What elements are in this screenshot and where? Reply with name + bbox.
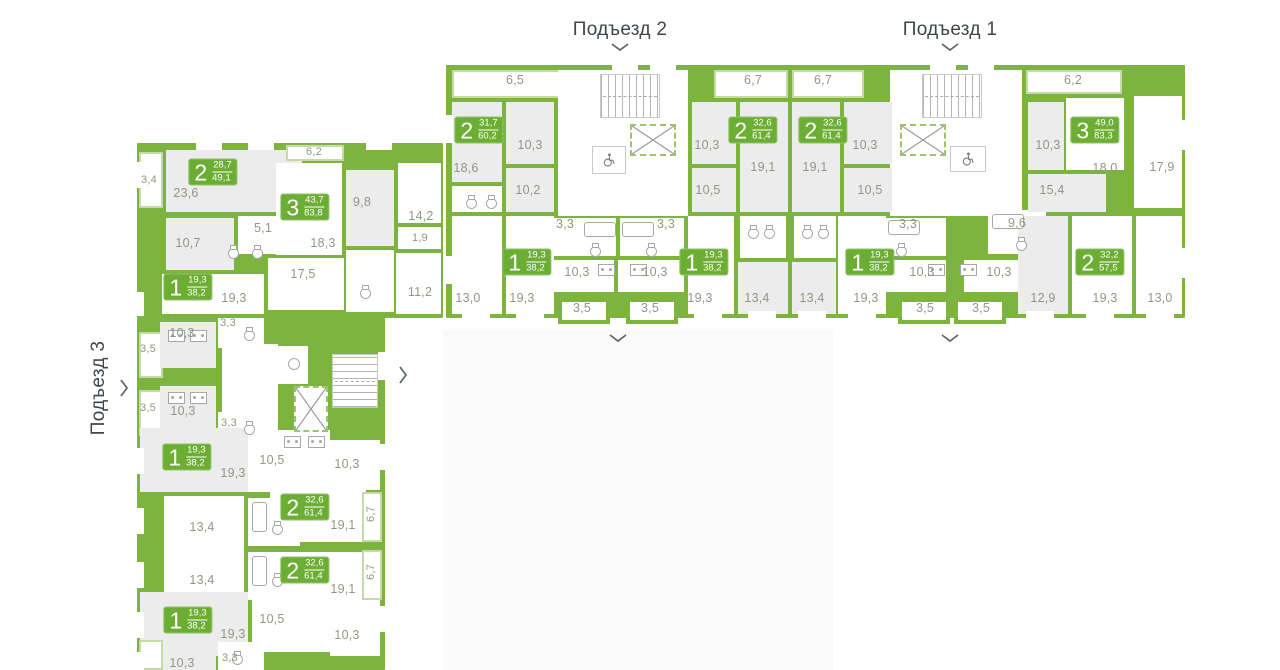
badge-living-area: 28,7 [212,161,233,173]
badge-total-area: 61,4 [822,131,843,142]
window-mark [1086,311,1114,318]
badge-areas: 19,338,2 [187,276,208,299]
area-label: 6,7 [744,73,762,87]
window-mark [366,143,392,150]
area-label: 3,3 [556,217,574,231]
toilet-icon [818,228,829,239]
badge-rooms-count: 2 [286,559,299,581]
stove-icon [960,264,977,276]
apartment-badge[interactable]: 119,338,2 [163,607,212,634]
badge-living-area: 19,3 [869,251,890,263]
badge-rooms-count: 2 [194,161,207,183]
area-label: 10,3 [169,326,194,340]
toilet-icon [244,330,255,341]
wheelchair-icon [950,146,986,172]
badge-total-area: 60,2 [478,131,499,142]
badge-areas: 19,338,2 [703,251,724,274]
area-label: 10,3 [334,457,359,471]
entrance-chevron-icon [119,378,129,398]
apartment-badge[interactable]: 119,338,2 [845,249,894,276]
badge-rooms-count: 2 [804,119,817,141]
area-label: 6,7 [365,506,377,522]
badge-living-area: 19,3 [526,251,547,263]
window-mark [1146,311,1174,318]
area-label: 17,5 [290,267,315,281]
area-label: 3,5 [972,301,990,315]
area-label: 9,8 [353,195,371,209]
badge-areas: 43,783,8 [304,196,325,219]
toilet-icon [360,288,371,299]
toilet-icon [896,246,907,257]
badge-areas: 32,661,4 [752,119,773,142]
toilet-icon [590,246,601,257]
entrance-chevron-icon [608,333,628,343]
badge-total-area: 61,4 [752,131,773,142]
area-label: 3,5 [140,402,156,414]
bathtub-icon [584,222,616,237]
toilet-icon [748,228,759,239]
entrance-chevron-icon [610,42,630,52]
badge-rooms-count: 3 [286,196,299,218]
area-label: 19,1 [330,582,355,596]
badge-total-area: 61,4 [304,571,325,582]
area-label: 13,0 [1147,291,1172,305]
area-label: 19,1 [750,160,775,174]
area-label: 18,6 [453,161,478,175]
wheelchair-icon [592,146,626,174]
badge-areas: 19,338,2 [526,251,547,274]
area-label: 6,7 [365,564,377,580]
area-label: 6,5 [506,73,524,87]
window-mark [462,311,490,318]
badge-total-area: 57,5 [1099,263,1120,274]
room [268,258,344,310]
elevator-icon [900,124,946,156]
window-mark [930,65,956,72]
window-mark [848,311,876,318]
toilet-icon [646,246,657,257]
toilet-icon [802,228,813,239]
badge-areas: 32,257,5 [1099,251,1120,274]
badge-rooms-count: 3 [1076,119,1089,141]
area-label: 10,3 [564,265,589,279]
area-label: 3,3 [657,217,675,231]
area-label: 10,3 [1035,138,1060,152]
apartment-badge[interactable]: 232,661,4 [798,117,847,144]
badge-rooms-count: 2 [1081,251,1094,273]
badge-rooms-count: 2 [286,496,299,518]
window-mark [137,292,144,316]
apartment-badge[interactable]: 349,083,3 [1070,117,1119,144]
window-mark [137,652,144,670]
area-label: 19,3 [509,291,534,305]
window-mark [694,311,722,318]
area-label: 19,3 [853,291,878,305]
badge-total-area: 61,4 [304,508,325,519]
stove-icon [168,392,185,404]
badge-total-area: 38,2 [869,263,890,274]
area-label: 10,3 [909,265,934,279]
window-mark [650,65,676,72]
window-mark [137,562,144,588]
elevator-icon [294,386,328,432]
badge-areas: 28,749,1 [212,161,233,184]
apartment-badge[interactable]: 119,338,2 [679,249,728,276]
area-label: 19,3 [220,627,245,641]
entrance-chevron-icon [398,365,408,385]
area-label: 3,3 [221,417,237,429]
entrance-chevron-icon [940,333,960,343]
stove-icon [190,392,207,404]
badge-rooms-count: 1 [169,276,182,298]
area-label: 3,5 [641,301,659,315]
room [1028,102,1064,170]
entrance-chevron-icon [940,42,960,52]
room [844,102,892,164]
badge-rooms-count: 1 [168,446,181,468]
apartment-badge[interactable]: 232,257,5 [1075,249,1124,276]
window-mark [968,65,994,72]
badge-living-area: 32,6 [304,496,325,508]
area-label: 14,2 [408,209,433,223]
badge-rooms-count: 1 [685,251,698,273]
area-label: 10,3 [986,265,1011,279]
badge-total-area: 38,2 [187,621,208,632]
area-label: 9,6 [1008,216,1026,230]
apartment-badge[interactable]: 231,760,2 [454,117,503,144]
apartment-badge[interactable]: 228,749,1 [188,159,237,186]
window-mark [378,352,385,380]
bathtub-icon [622,222,654,237]
stairs-icon [922,74,982,118]
badge-total-area: 38,2 [526,263,547,274]
area-label: 10,3 [169,656,194,670]
badge-living-area: 32,6 [752,119,773,131]
apartment-badge[interactable]: 232,661,4 [280,494,329,521]
badge-living-area: 32,6 [304,559,325,571]
elevator-icon [630,124,676,156]
area-label: 13,4 [189,573,214,587]
toilet-icon [466,198,477,209]
bathtub-icon [252,556,267,586]
badge-total-area: 49,1 [212,173,233,184]
area-label: 18,0 [1092,161,1117,175]
badge-total-area: 38,2 [187,288,208,299]
stairs-icon [332,354,378,408]
apartment-badge[interactable]: 119,338,2 [502,249,551,276]
badge-areas: 32,661,4 [822,119,843,142]
area-label: 13,4 [744,291,769,305]
apartment-badge[interactable]: 232,661,4 [728,117,777,144]
area-label: 10,3 [694,138,719,152]
apartment-badge[interactable]: 343,783,8 [280,194,329,221]
entrance-label: Подъезд 2 [573,19,667,41]
badge-rooms-count: 2 [734,119,747,141]
toilet-icon [244,424,255,435]
stove-icon [598,264,615,276]
area-label: 3,4 [141,174,157,186]
window-mark [378,606,385,632]
area-label: 15,4 [1039,183,1064,197]
room [738,262,788,314]
area-label: 10,3 [517,138,542,152]
area-label: 17,9 [1149,160,1174,174]
area-label: 10,7 [175,236,200,250]
window-mark [137,612,144,638]
area-label: 11,2 [408,285,432,299]
window-mark [1178,120,1185,150]
badge-living-area: 19,3 [186,446,207,458]
area-label: 12,9 [1030,291,1055,305]
badge-areas: 19,338,2 [869,251,890,274]
badge-areas: 32,661,4 [304,496,325,519]
apartment-badge[interactable]: 119,338,2 [162,444,211,471]
area-label: 3,3 [220,317,236,329]
area-label: 13,0 [455,291,480,305]
area-label: 3,3 [899,217,917,231]
room [740,216,786,258]
badge-areas: 19,338,2 [187,609,208,632]
toilet-icon [272,524,283,535]
badge-living-area: 19,3 [187,276,208,288]
badge-total-area: 83,3 [1094,131,1115,142]
badge-living-area: 31,7 [478,119,499,131]
area-label: 10,5 [857,183,882,197]
badge-living-area: 32,6 [822,119,843,131]
badge-total-area: 38,2 [703,263,724,274]
badge-living-area: 49,0 [1094,119,1115,131]
window-mark [196,143,222,150]
area-label: 5,1 [254,221,272,235]
area-label: 18,3 [310,236,335,250]
floorplan-canvas: 6,56,76,76,218,610,310,210,310,519,119,1… [0,0,1280,670]
badge-areas: 49,083,3 [1094,119,1115,142]
badge-areas: 19,338,2 [186,446,207,469]
apartment-badge[interactable]: 119,338,2 [163,274,212,301]
area-label: 3,3 [222,652,238,664]
toilet-icon [486,198,497,209]
badge-rooms-count: 1 [508,251,521,273]
area-label: 6,7 [814,73,832,87]
window-mark [1026,311,1054,318]
area-label: 19,3 [220,466,245,480]
room [506,102,554,164]
badge-rooms-count: 1 [169,609,182,631]
room [396,253,441,314]
area-label: 6,2 [306,146,322,158]
stove-icon [308,436,325,448]
area-label: 10,3 [852,138,877,152]
area-label: 10,2 [515,183,540,197]
window-mark [137,448,144,474]
window-mark [446,256,453,284]
entrance-label: Подъезд 1 [903,19,997,41]
badge-rooms-count: 1 [851,251,864,273]
badge-total-area: 83,8 [304,208,325,219]
area-label: 6,2 [1064,73,1082,87]
apartment-badge[interactable]: 232,661,4 [280,557,329,584]
bathtub-icon [252,502,267,532]
area-label: 19,3 [221,291,246,305]
area-label: 10,5 [259,612,284,626]
window-mark [748,311,776,318]
background-tint [443,330,833,670]
area-label: 10,3 [334,628,359,642]
badge-living-area: 32,2 [1099,251,1120,263]
room [794,216,836,258]
area-label: 10,5 [259,453,284,467]
area-label: 3,5 [916,301,934,315]
area-label: 19,1 [330,518,355,532]
area-label: 10,3 [170,404,195,418]
area-label: 23,6 [173,186,198,200]
room [792,262,836,314]
badge-living-area: 19,3 [187,609,208,621]
window-mark [516,311,544,318]
badge-total-area: 38,2 [186,458,207,469]
area-label: 3,5 [140,343,156,355]
area-label: 13,4 [189,520,214,534]
area-label: 19,1 [802,160,827,174]
area-label: 10,3 [642,265,667,279]
window-mark [798,311,826,318]
toilet-icon [1016,240,1027,251]
area-label: 3,5 [573,301,591,315]
sink-icon [288,358,300,370]
area-label: 19,3 [687,291,712,305]
window-mark [612,65,638,72]
area-label: 19,3 [1092,291,1117,305]
window-mark [1178,248,1185,278]
badge-living-area: 43,7 [304,196,325,208]
toilet-icon [228,248,239,259]
badge-rooms-count: 2 [460,119,473,141]
area-label: 1,9 [412,232,428,244]
area-label: 10,5 [695,183,720,197]
room [1134,96,1182,208]
toilet-icon [252,248,263,259]
badge-areas: 32,661,4 [304,559,325,582]
area-label: 13,4 [799,291,824,305]
room [346,250,394,312]
badge-living-area: 19,3 [703,251,724,263]
window-mark [137,508,144,534]
window-mark [446,115,453,143]
entrance-label: Подъезд 3 [88,341,110,435]
window-mark [378,444,385,470]
badge-areas: 31,760,2 [478,119,499,142]
window-mark [248,143,274,150]
stairs-icon [600,74,660,118]
stove-icon [284,436,301,448]
toilet-icon [764,228,775,239]
